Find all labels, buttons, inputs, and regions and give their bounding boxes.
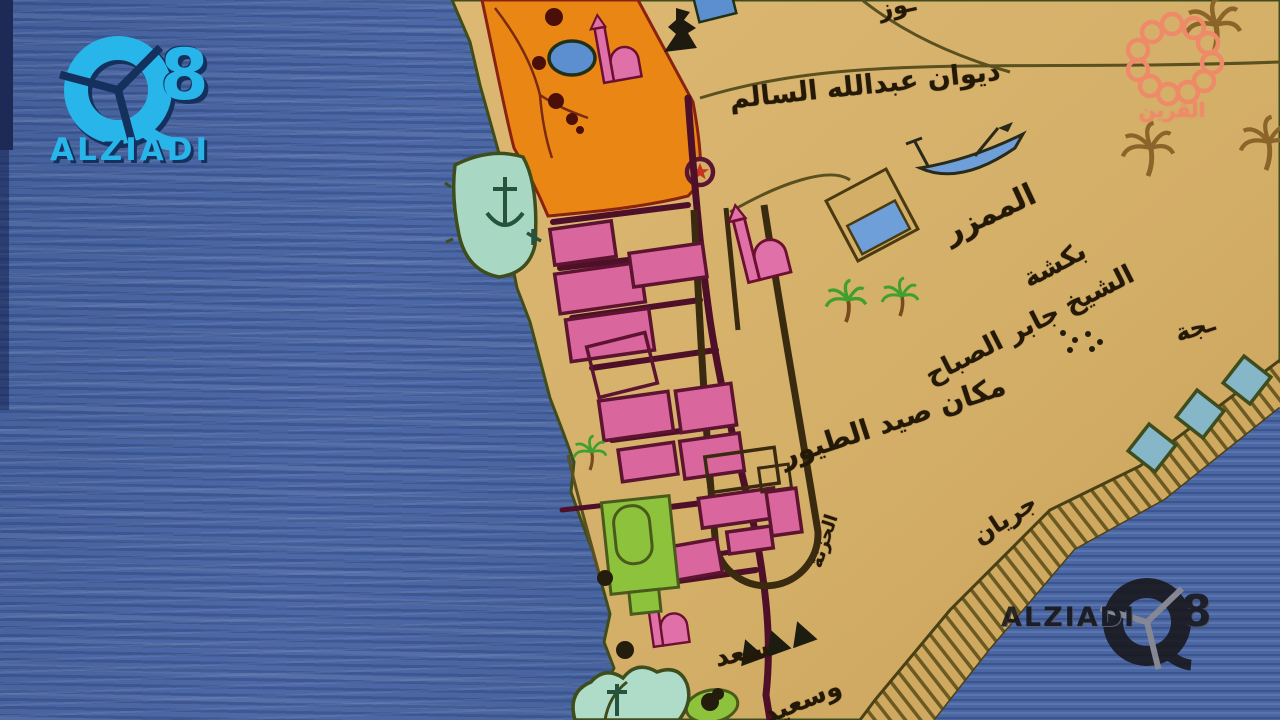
station-logo-name: القرين bbox=[1116, 98, 1228, 122]
watermark-number: 8 bbox=[1181, 586, 1212, 637]
logo-number: 8 bbox=[160, 34, 209, 116]
pond-icon bbox=[549, 41, 595, 75]
logo-name: ALZIADI bbox=[50, 132, 210, 168]
harbor bbox=[445, 153, 541, 277]
watermark-name: ALZIADI bbox=[1001, 602, 1136, 633]
channel-logo: 8 ALZIADI bbox=[22, 10, 222, 180]
video-frame: ديوان عبدالله السالم الممزر بكشة الشيخ ج… bbox=[0, 0, 1280, 720]
south-bay bbox=[573, 667, 689, 720]
station-logo: القرين bbox=[1116, 12, 1232, 128]
ring-of-circles-icon bbox=[1116, 12, 1232, 112]
watermark: ALZIADI 8 bbox=[995, 566, 1230, 681]
